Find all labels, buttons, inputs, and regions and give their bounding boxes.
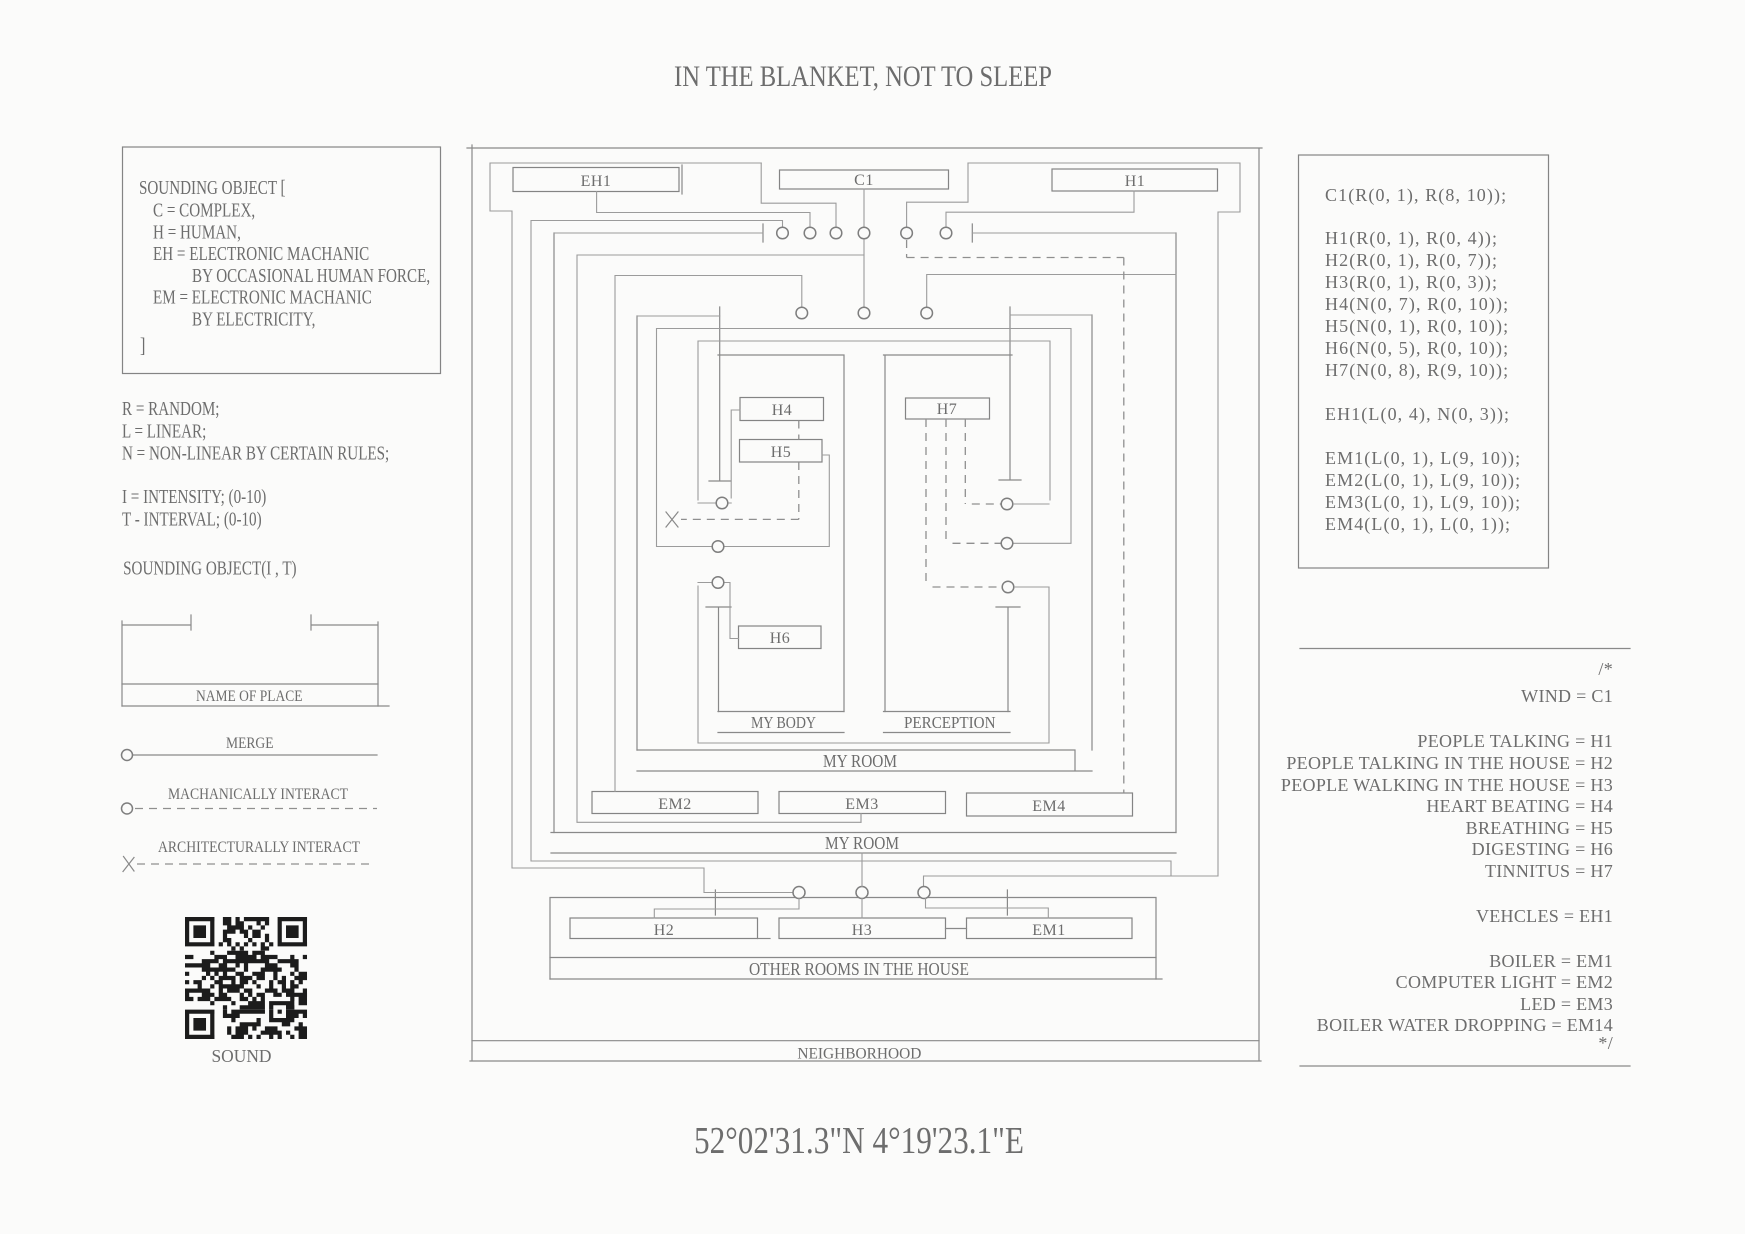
svg-text:IN THE BLANKET, NOT TO SLEEP: IN THE BLANKET, NOT TO SLEEP	[674, 60, 1052, 93]
svg-text:BOILER WATER DROPPING = EM14: BOILER WATER DROPPING = EM14	[1317, 1015, 1613, 1035]
svg-text:EM4(L(0, 1), L(0, 1));: EM4(L(0, 1), L(0, 1));	[1325, 514, 1511, 535]
svg-text:H3(R(0, 1), R(0, 3));: H3(R(0, 1), R(0, 3));	[1325, 272, 1498, 293]
svg-text:HEART BEATING = H4: HEART BEATING = H4	[1426, 796, 1613, 816]
svg-text:H2: H2	[654, 922, 675, 939]
svg-text:SOUND: SOUND	[212, 1046, 272, 1066]
svg-text:N = NON-LINEAR BY CERTAIN RULE: N = NON-LINEAR BY CERTAIN RULES;	[122, 442, 389, 464]
svg-text:BY ELECTRICITY,: BY ELECTRICITY,	[192, 308, 315, 330]
svg-text:EM2(L(0, 1), L(9, 10));: EM2(L(0, 1), L(9, 10));	[1325, 470, 1521, 491]
svg-text:EM1: EM1	[1032, 922, 1066, 939]
svg-text:R = RANDOM;: R = RANDOM;	[122, 397, 220, 419]
svg-text:H5: H5	[771, 444, 792, 461]
svg-text:EM = ELECTRONIC MACHANIC: EM = ELECTRONIC MACHANIC	[153, 286, 372, 308]
svg-text:PEOPLE TALKING = H1: PEOPLE TALKING = H1	[1417, 731, 1613, 751]
svg-text:MACHANICALLY INTERACT: MACHANICALLY INTERACT	[168, 786, 348, 803]
svg-text:H1(R(0, 1), R(0, 4));: H1(R(0, 1), R(0, 4));	[1325, 228, 1498, 249]
svg-text:H4(N(0, 7), R(0, 10));: H4(N(0, 7), R(0, 10));	[1325, 294, 1509, 315]
svg-text:H3: H3	[852, 922, 873, 939]
svg-text:H7: H7	[937, 401, 958, 418]
svg-text:H4: H4	[772, 402, 793, 419]
svg-text:EM3: EM3	[845, 796, 879, 813]
svg-text:L = LINEAR;: L = LINEAR;	[122, 420, 206, 442]
svg-text:EM3(L(0, 1), L(9, 10));: EM3(L(0, 1), L(9, 10));	[1325, 492, 1521, 513]
svg-text:52°02'31.3"N 4°19'23.1"E: 52°02'31.3"N 4°19'23.1"E	[694, 1120, 1024, 1162]
svg-text:TINNITUS = H7: TINNITUS = H7	[1485, 861, 1613, 881]
svg-text:EM2: EM2	[658, 796, 692, 813]
svg-text:BY OCCASIONAL HUMAN FORCE,: BY OCCASIONAL HUMAN FORCE,	[192, 264, 430, 286]
svg-text:C1: C1	[854, 172, 874, 189]
svg-text:]: ]	[140, 334, 145, 357]
svg-text:NEIGHBORHOOD: NEIGHBORHOOD	[797, 1046, 921, 1063]
svg-text:*/: */	[1598, 1033, 1613, 1053]
svg-text:H2(R(0, 1), R(0, 7));: H2(R(0, 1), R(0, 7));	[1325, 250, 1498, 271]
svg-text:COMPUTER LIGHT = EM2: COMPUTER LIGHT = EM2	[1396, 972, 1613, 992]
svg-text:SOUNDING OBJECT [: SOUNDING OBJECT [	[139, 176, 286, 198]
svg-text:OTHER ROOMS IN THE HOUSE: OTHER ROOMS IN THE HOUSE	[749, 959, 969, 979]
svg-text:EH = ELECTRONIC MACHANIC: EH = ELECTRONIC MACHANIC	[153, 242, 369, 264]
svg-text:MY ROOM: MY ROOM	[825, 833, 899, 853]
svg-text:MERGE: MERGE	[226, 735, 274, 752]
svg-text:MY ROOM: MY ROOM	[823, 751, 897, 771]
svg-text:H7(N(0, 8), R(9, 10));: H7(N(0, 8), R(9, 10));	[1325, 360, 1509, 381]
svg-text:BREATHING = H5: BREATHING = H5	[1466, 818, 1613, 838]
svg-text:I = INTENSITY; (0-10): I = INTENSITY; (0-10)	[122, 485, 266, 507]
svg-text:SOUNDING OBJECT(I , T): SOUNDING OBJECT(I , T)	[123, 557, 297, 579]
svg-text:H = HUMAN,: H = HUMAN,	[153, 221, 241, 243]
svg-text:H6: H6	[770, 630, 791, 647]
svg-text:PEOPLE WALKING IN THE HOUSE =: PEOPLE WALKING IN THE HOUSE = H3	[1281, 775, 1613, 795]
svg-text:WIND = C1: WIND = C1	[1521, 686, 1613, 706]
svg-text:EH1(L(0, 4), N(0, 3));: EH1(L(0, 4), N(0, 3));	[1325, 404, 1510, 425]
svg-text:/*: /*	[1598, 659, 1613, 679]
svg-text:H5(N(0, 1), R(0, 10));: H5(N(0, 1), R(0, 10));	[1325, 316, 1509, 337]
svg-text:MY BODY: MY BODY	[751, 713, 816, 732]
svg-text:EM4: EM4	[1032, 798, 1066, 815]
svg-text:C1(R(0, 1), R(8, 10));: C1(R(0, 1), R(8, 10));	[1325, 185, 1507, 206]
svg-text:EM1(L(0, 1), L(9, 10));: EM1(L(0, 1), L(9, 10));	[1325, 448, 1521, 469]
svg-text:PEOPLE TALKING IN THE HOUSE =: PEOPLE TALKING IN THE HOUSE = H2	[1286, 753, 1613, 773]
svg-text:C = COMPLEX,: C = COMPLEX,	[153, 199, 255, 221]
svg-text:NAME OF PLACE: NAME OF PLACE	[196, 688, 303, 705]
svg-text:VEHCLES = EH1: VEHCLES = EH1	[1476, 906, 1613, 926]
svg-text:DIGESTING = H6: DIGESTING = H6	[1472, 839, 1613, 859]
svg-text:EH1: EH1	[581, 173, 612, 190]
svg-text:LED = EM3: LED = EM3	[1520, 994, 1613, 1014]
svg-text:T - INTERVAL; (0-10): T - INTERVAL; (0-10)	[122, 508, 262, 530]
svg-text:H6(N(0, 5), R(0, 10));: H6(N(0, 5), R(0, 10));	[1325, 338, 1509, 359]
svg-text:BOILER = EM1: BOILER = EM1	[1489, 951, 1613, 971]
svg-text:H1: H1	[1125, 173, 1146, 190]
svg-text:PERCEPTION: PERCEPTION	[904, 713, 996, 732]
svg-text:ARCHITECTURALLY INTERACT: ARCHITECTURALLY INTERACT	[158, 839, 360, 856]
